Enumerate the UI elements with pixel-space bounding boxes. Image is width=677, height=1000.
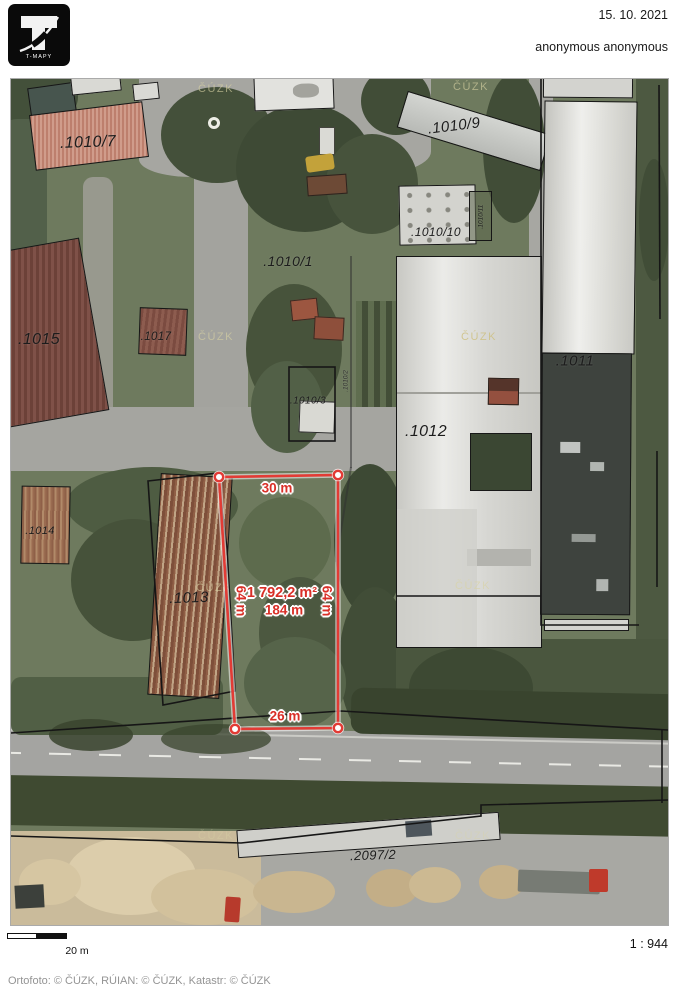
scale-bar-segment-black — [37, 933, 67, 939]
parcel-label-1011: .1011 — [556, 353, 594, 370]
map-viewport: ČÚZK ČÚZK ČÚZK ČÚZK ČÚZK ČÚZK ČÚZK ČÚZK … — [10, 78, 669, 926]
parcel-label-1012: .1012 — [405, 423, 447, 441]
measure-area: 1 792,2 m² — [247, 585, 317, 601]
parcel-label-1015: .1015 — [18, 331, 60, 349]
measure-right-length: 64 m — [320, 586, 335, 617]
logo-text: T-MAPY — [8, 54, 70, 60]
parcel-label-1010-1: .1010/1 — [263, 253, 313, 269]
print-date: 15. 10. 2021 — [598, 8, 668, 22]
parcel-label-1010-10: .1010/10 — [411, 225, 461, 239]
user-name: anonymous anonymous — [535, 40, 668, 54]
parcel-label-1017: .1017 — [141, 331, 172, 343]
parcel-label-1010-2: .1010/2 — [343, 370, 350, 392]
scale-bar-segment-white — [7, 933, 37, 939]
measure-top-length: 30 m — [262, 481, 293, 496]
scale-bar: 20 m — [7, 933, 107, 963]
scale-bar-label: 20 m — [55, 945, 99, 957]
parcel-label-1010-11: .1010/11 — [478, 205, 485, 230]
parcel-label-1013: .1013 — [169, 589, 209, 607]
cadastral-overlay — [11, 79, 668, 925]
parcel-label-1010-7: .1010/7 — [60, 133, 117, 153]
parcel-label-1014: .1014 — [25, 525, 55, 537]
measure-bottom-length: 26 m — [270, 709, 301, 724]
attribution: Ortofoto: © ČÚZK, RÚIAN: © ČÚZK, Katastr… — [8, 975, 271, 987]
parcel-label-2097-2: .2097/2 — [350, 847, 397, 864]
parcel-label-1010-3: .1010/3 — [290, 396, 326, 407]
app-logo: T-MAPY — [8, 4, 70, 66]
measure-perimeter: 184 m — [265, 603, 303, 618]
scale-ratio: 1 : 944 — [630, 937, 668, 951]
